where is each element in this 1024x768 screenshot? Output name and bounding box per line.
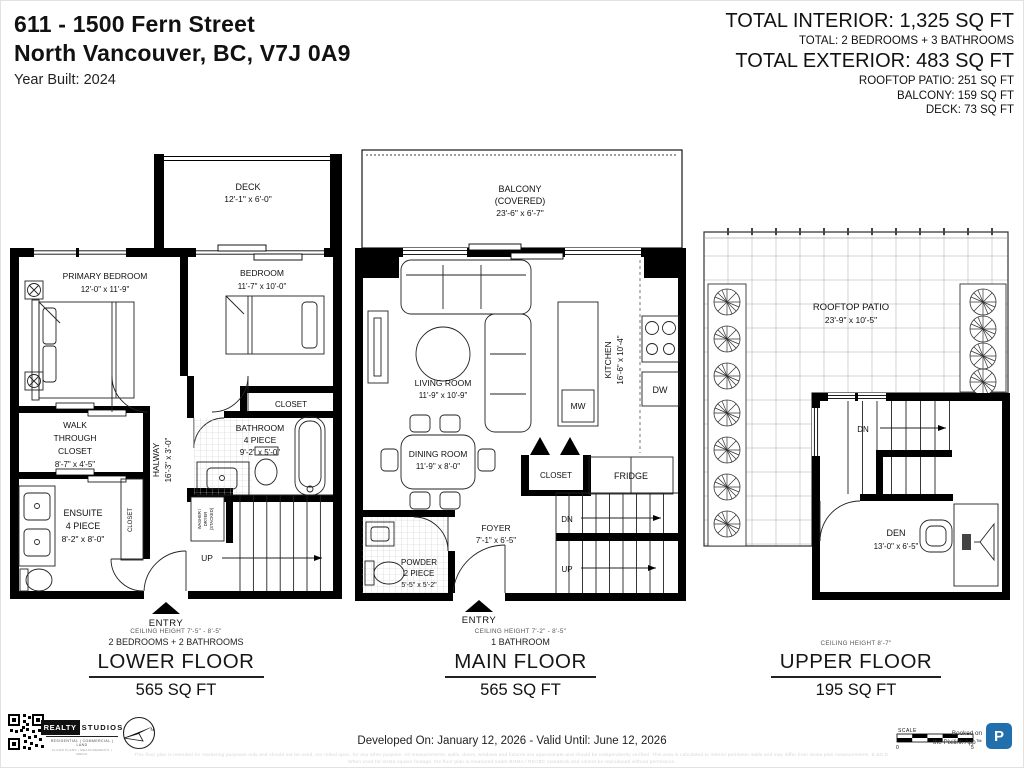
kitchen-dims: 16'-6" x 10'-4" (616, 335, 625, 384)
lower-ceiling-height: CEILING HEIGHT 7'-5" - 8'-5" (8, 628, 344, 635)
fridge-label: FRIDGE (614, 471, 648, 481)
main-entry-door (453, 545, 505, 593)
deck-area: DECK: 73 SQ FT (725, 103, 1014, 117)
living-room-dims: 11'-9" x 10'-9" (419, 391, 468, 400)
primary-bedroom-dims: 12'-0" x 11'-9" (81, 285, 130, 294)
floor-plan-sheet: 611 - 1500 Fern Street North Vancouver, … (0, 0, 1024, 768)
balcony-dims: 23'-6" x 6'-7" (496, 208, 544, 218)
scale-label: SCALE (898, 728, 917, 734)
up-label: UP (561, 565, 572, 574)
pixilink-booked-text: Booked on the Pixilink App™ (933, 729, 982, 748)
primary-bedroom-label: PRIMARY BEDROOM (63, 271, 148, 281)
dining-room-dims: 11'-9" x 8'-0" (416, 462, 460, 471)
lower-entry-label: ENTRY (149, 618, 184, 628)
powder-label-2: 2 PIECE (404, 569, 435, 578)
right-planter (960, 284, 1006, 395)
booked-line-1: Booked on (933, 729, 982, 738)
main-floor-area: 565 SQ FT (353, 681, 688, 700)
dining-room-label: DINING ROOM (409, 449, 468, 459)
ensuite-fixtures (19, 486, 55, 591)
address-line2: North Vancouver, BC, V7J 0A9 (14, 39, 351, 68)
walk-through-closet-label-1: WALK (63, 420, 87, 430)
main-rooms-line: 1 BATHROOM (353, 637, 688, 647)
booked-line-2: the Pixilink App™ (933, 738, 982, 747)
area-summary: TOTAL INTERIOR: 1,325 SQ FT TOTAL: 2 BED… (725, 8, 1014, 118)
bathroom-label-1: BATHROOM (236, 423, 284, 433)
foyer-dims: 7'-1" x 6'-5" (476, 536, 516, 545)
closet-label: CLOSET (275, 400, 307, 409)
total-interior: TOTAL INTERIOR: 1,325 SQ FT (725, 8, 1014, 34)
entry-arrow-icon (152, 602, 180, 614)
den-dims: 13'-0" x 6'-5" (874, 542, 919, 551)
dn-arrow (653, 515, 661, 521)
dn-label: DN (857, 425, 869, 434)
closet-double-doors (530, 437, 580, 455)
washer-dryer-label-2: DRYER (203, 512, 208, 527)
developed-validity-line: Developed On: January 12, 2026 - Valid U… (0, 735, 1024, 747)
left-planter (708, 284, 746, 546)
pixilink-badge-letter: P (994, 728, 1004, 745)
pixilink-badge-icon: P (986, 723, 1012, 749)
powder-dims: 5'-5" x 5'-2" (401, 582, 437, 589)
upper-floor-plan: ROOFTOP PATIO 23'-9" x 10'-5" DN DEN 13'… (698, 226, 1014, 628)
lower-rooms-line: 2 BEDROOMS + 2 BATHROOMS (8, 637, 344, 647)
logo-realty-text: REALTY (41, 720, 80, 735)
property-address: 611 - 1500 Fern Street North Vancouver, … (14, 10, 351, 88)
balcony-label-1: BALCONY (498, 184, 541, 194)
bedroom-dims: 11'-7" x 10'-0" (238, 282, 287, 291)
primary-bed (32, 300, 134, 400)
lower-floor-name: LOWER FLOOR (89, 649, 264, 678)
ceiling-fan-icon (25, 281, 43, 390)
lower-floor-caption: CEILING HEIGHT 7'-5" - 8'-5" 2 BEDROOMS … (8, 628, 344, 700)
disclaimer-line-2: When used for strata square footage, the… (0, 759, 1024, 764)
compass-n-label: N (151, 727, 154, 732)
logo-studios-text: STUDIOS (80, 720, 124, 735)
total-exterior: TOTAL EXTERIOR: 483 SQ FT (725, 48, 1014, 74)
hallway-label: HALWAY (151, 443, 161, 478)
up-arrow (648, 565, 656, 571)
balcony-area: BALCONY: 159 SQ FT (725, 89, 1014, 103)
washer-dryer-label-1: WASHER / (197, 508, 202, 529)
deck-label: DECK (235, 182, 260, 192)
upper-floor-name: UPPER FLOOR (771, 649, 941, 678)
living-room-label: LIVING ROOM (415, 378, 472, 388)
deck-dims: 12'-1" x 6'-0" (224, 194, 272, 204)
lower-floor-plan: WASHER / DRYER (STACKED) DECK 12'-1" (8, 150, 344, 628)
scale-start-label: 0 (896, 745, 899, 751)
main-stairs (556, 493, 678, 593)
den-label: DEN (886, 528, 905, 538)
upper-floor-area: 195 SQ FT (698, 681, 1014, 700)
main-floor-plan: BALCONY (COVERED) 23'-6" x 6'-7" LIVING … (353, 148, 688, 626)
main-floor-caption: CEILING HEIGHT 7'-2" - 8'-5" 1 BATHROOM … (353, 628, 688, 700)
upper-floor-caption: CEILING HEIGHT 8'-7" UPPER FLOOR 195 SQ … (698, 640, 1014, 700)
microwave-label: MW (570, 401, 585, 411)
living-room-furniture (368, 260, 531, 432)
address-line1: 611 - 1500 Fern Street (14, 10, 351, 39)
main-floor-name: MAIN FLOOR (445, 649, 596, 678)
up-label: UP (201, 553, 213, 563)
disclaimer-line-1: This floor plan is intended for marketin… (0, 752, 1024, 757)
lower-walls (10, 248, 342, 599)
dn-label: DN (561, 515, 573, 524)
lower-floor-area: 565 SQ FT (8, 681, 344, 700)
walk-through-closet-dims: 8'-7" x 4'-5" (55, 460, 95, 469)
ensuite-dims: 8'-2" x 8'-0" (62, 534, 105, 544)
rooftop-patio-dims: 23'-9" x 10'-5" (825, 315, 877, 325)
lower-stairs (222, 495, 333, 591)
upper-ceiling-height: CEILING HEIGHT 8'-7" (698, 640, 1014, 647)
total-rooms: TOTAL: 2 BEDROOMS + 3 BATHROOMS (725, 34, 1014, 48)
hallway-dims: 16'-3" x 3'-0" (164, 437, 173, 482)
main-ceiling-height: CEILING HEIGHT 7'-2" - 8'-5" (353, 628, 688, 635)
entry-arrow-icon (465, 600, 493, 612)
main-entry-label: ENTRY (462, 615, 497, 626)
year-built: Year Built: 2024 (14, 72, 351, 88)
dishwasher-label: DW (653, 385, 668, 395)
kitchen-label: KITCHEN (603, 341, 613, 378)
foyer-label: FOYER (481, 523, 510, 533)
bedroom-bed (226, 296, 324, 354)
rooftop-patio-area: ROOFTOP PATIO: 251 SQ FT (725, 74, 1014, 88)
washer-dryer: WASHER / DRYER (STACKED) (191, 497, 224, 541)
washer-dryer-label-3: (STACKED) (209, 507, 214, 530)
bathroom-label-2: 4 PIECE (244, 435, 277, 445)
ensuite-label-2: 4 PIECE (66, 521, 101, 531)
walk-through-closet-label-2: THROUGH (54, 433, 97, 443)
powder-label-1: POWDER (401, 558, 437, 567)
balcony-label-2: (COVERED) (495, 196, 546, 206)
bathroom-dims: 9'-2" x 5'-0" (240, 448, 280, 457)
closet-label: CLOSET (540, 471, 572, 480)
bedroom-label: BEDROOM (240, 268, 284, 278)
rooftop-patio-label: ROOFTOP PATIO (813, 302, 889, 313)
ensuite-label-1: ENSUITE (63, 508, 102, 518)
walk-through-closet-label-3: CLOSET (58, 446, 92, 456)
closet-vertical-label: CLOSET (128, 508, 134, 532)
